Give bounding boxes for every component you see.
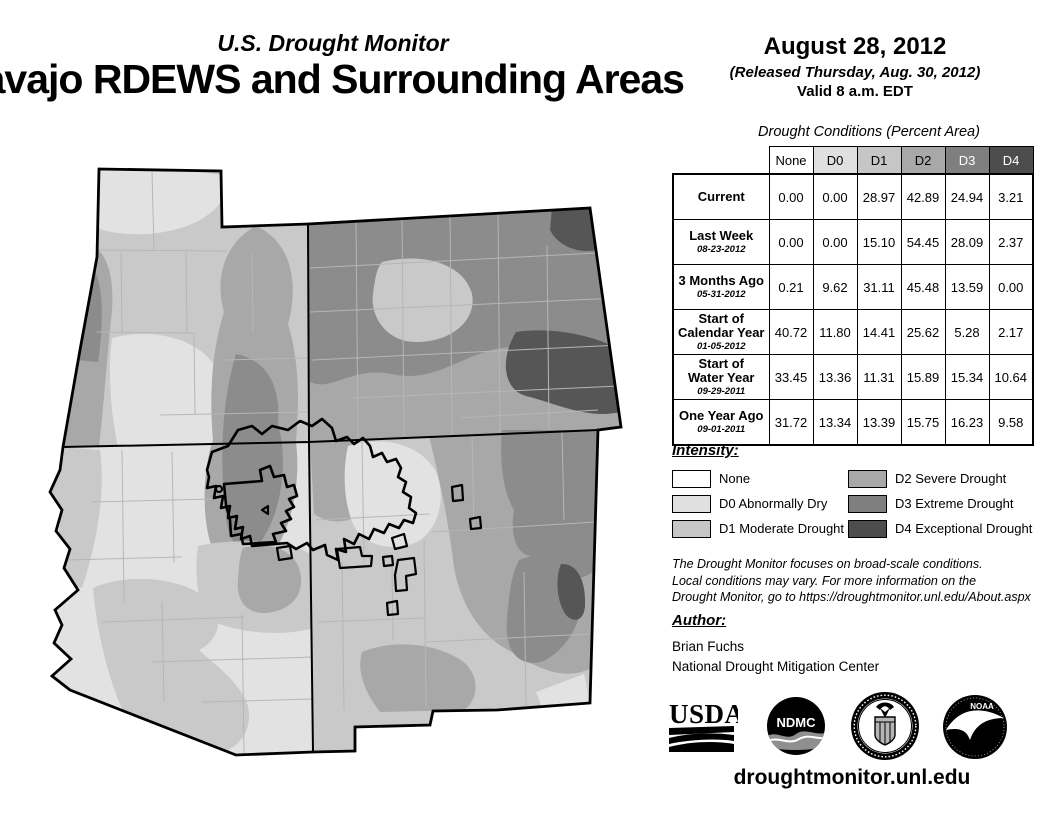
table-header-row: None D0 D1 D2 D3 D4 bbox=[673, 147, 1033, 175]
usda-logo-icon: USDA bbox=[668, 700, 738, 756]
table-cell: 54.45 bbox=[901, 220, 945, 265]
table-cell: 0.00 bbox=[989, 265, 1033, 310]
released-date: (Released Thursday, Aug. 30, 2012) bbox=[700, 64, 1010, 81]
author-block: Author: Brian Fuchs National Drought Mit… bbox=[672, 612, 879, 674]
author-org: National Drought Mitigation Center bbox=[672, 659, 879, 674]
table-cell: 14.41 bbox=[857, 310, 901, 355]
column-header-d4: D4 bbox=[989, 147, 1033, 175]
table-cell: 40.72 bbox=[769, 310, 813, 355]
monitor-title: U.S. Drought Monitor bbox=[133, 30, 533, 57]
table-cell: 33.45 bbox=[769, 355, 813, 400]
row-label: Start of Calendar Year 01-05-2012 bbox=[673, 310, 769, 355]
table-cell: 10.64 bbox=[989, 355, 1033, 400]
table-cell: 24.94 bbox=[945, 174, 989, 220]
valid-time: Valid 8 a.m. EDT bbox=[700, 83, 1010, 100]
drought-map bbox=[0, 150, 660, 780]
table-cell: 25.62 bbox=[901, 310, 945, 355]
table-corner-cell bbox=[673, 147, 769, 175]
author-heading: Author: bbox=[672, 612, 879, 629]
svg-text:NDMC: NDMC bbox=[777, 715, 817, 730]
table-cell: 15.34 bbox=[945, 355, 989, 400]
none-swatch bbox=[672, 470, 711, 488]
d0-swatch bbox=[672, 495, 711, 513]
table-cell: 28.97 bbox=[857, 174, 901, 220]
table-cell: 28.09 bbox=[945, 220, 989, 265]
region-title: Navajo RDEWS and Surrounding Areas bbox=[0, 56, 684, 103]
table-cell: 0.00 bbox=[769, 220, 813, 265]
table-cell: 13.36 bbox=[813, 355, 857, 400]
d1-swatch bbox=[672, 520, 711, 538]
legend-item-d4: D4 Exceptional Drought bbox=[848, 516, 1048, 541]
noaa-logo-icon: NOAA bbox=[942, 694, 1008, 760]
table-cell: 15.10 bbox=[857, 220, 901, 265]
table-row: One Year Ago 09-01-2011 31.72 13.34 13.3… bbox=[673, 400, 1033, 446]
table-cell: 31.72 bbox=[769, 400, 813, 446]
legend-item-d3: D3 Extreme Drought bbox=[848, 491, 1048, 516]
table-cell: 0.00 bbox=[813, 220, 857, 265]
disclaimer-text: The Drought Monitor focuses on broad-sca… bbox=[672, 556, 1031, 606]
d3-swatch bbox=[848, 495, 887, 513]
table-cell: 16.23 bbox=[945, 400, 989, 446]
table-cell: 3.21 bbox=[989, 174, 1033, 220]
table-cell: 11.80 bbox=[813, 310, 857, 355]
legend-item-d0: D0 Abnormally Dry bbox=[672, 491, 848, 516]
table-cell: 42.89 bbox=[901, 174, 945, 220]
drought-conditions-table: None D0 D1 D2 D3 D4 Current 0.00 0.00 28… bbox=[672, 146, 1034, 446]
author-name: Brian Fuchs bbox=[672, 639, 879, 654]
column-header-d0: D0 bbox=[813, 147, 857, 175]
legend-item-none: None bbox=[672, 466, 848, 491]
table-cell: 5.28 bbox=[945, 310, 989, 355]
table-cell: 11.31 bbox=[857, 355, 901, 400]
droughtmonitor-url: droughtmonitor.unl.edu bbox=[672, 766, 1032, 790]
table-title: Drought Conditions (Percent Area) bbox=[708, 124, 1030, 140]
column-header-d3: D3 bbox=[945, 147, 989, 175]
table-cell: 9.58 bbox=[989, 400, 1033, 446]
table-cell: 15.89 bbox=[901, 355, 945, 400]
row-label: One Year Ago 09-01-2011 bbox=[673, 400, 769, 446]
drought-monitor-page: U.S. Drought Monitor Navajo RDEWS and Su… bbox=[0, 0, 1056, 816]
table-cell: 13.59 bbox=[945, 265, 989, 310]
commerce-seal-icon bbox=[850, 691, 920, 761]
ndmc-logo-icon: NDMC bbox=[766, 696, 826, 756]
table-row: Start of Water Year 09-29-2011 33.45 13.… bbox=[673, 355, 1033, 400]
table-cell: 0.00 bbox=[813, 174, 857, 220]
row-label: Start of Water Year 09-29-2011 bbox=[673, 355, 769, 400]
table-cell: 9.62 bbox=[813, 265, 857, 310]
column-header-none: None bbox=[769, 147, 813, 175]
drought-shading bbox=[0, 150, 660, 780]
table-row: Start of Calendar Year 01-05-2012 40.72 … bbox=[673, 310, 1033, 355]
d4-swatch bbox=[848, 520, 887, 538]
d2-swatch bbox=[848, 470, 887, 488]
table-row: Current 0.00 0.00 28.97 42.89 24.94 3.21 bbox=[673, 174, 1033, 220]
map-date: August 28, 2012 bbox=[700, 33, 1010, 61]
date-block: August 28, 2012 (Released Thursday, Aug.… bbox=[700, 33, 1010, 100]
svg-text:USDA: USDA bbox=[669, 700, 738, 729]
row-label: Last Week 08-23-2012 bbox=[673, 220, 769, 265]
legend-item-d2: D2 Severe Drought bbox=[848, 466, 1048, 491]
table-cell: 45.48 bbox=[901, 265, 945, 310]
row-label: 3 Months Ago 05-31-2012 bbox=[673, 265, 769, 310]
table-cell: 2.37 bbox=[989, 220, 1033, 265]
table-cell: 2.17 bbox=[989, 310, 1033, 355]
table-cell: 15.75 bbox=[901, 400, 945, 446]
row-label: Current bbox=[673, 174, 769, 220]
table-cell: 0.21 bbox=[769, 265, 813, 310]
table-cell: 13.34 bbox=[813, 400, 857, 446]
column-header-d1: D1 bbox=[857, 147, 901, 175]
table-cell: 13.39 bbox=[857, 400, 901, 446]
legend-heading: Intensity: bbox=[672, 442, 1052, 459]
column-header-d2: D2 bbox=[901, 147, 945, 175]
table-cell: 0.00 bbox=[769, 174, 813, 220]
legend-item-d1: D1 Moderate Drought bbox=[672, 516, 848, 541]
table-row: Last Week 08-23-2012 0.00 0.00 15.10 54.… bbox=[673, 220, 1033, 265]
intensity-legend: Intensity: None D0 Abnormally Dry D1 Mod… bbox=[672, 442, 1052, 541]
table-row: 3 Months Ago 05-31-2012 0.21 9.62 31.11 … bbox=[673, 265, 1033, 310]
svg-text:NOAA: NOAA bbox=[970, 702, 994, 711]
table-cell: 31.11 bbox=[857, 265, 901, 310]
